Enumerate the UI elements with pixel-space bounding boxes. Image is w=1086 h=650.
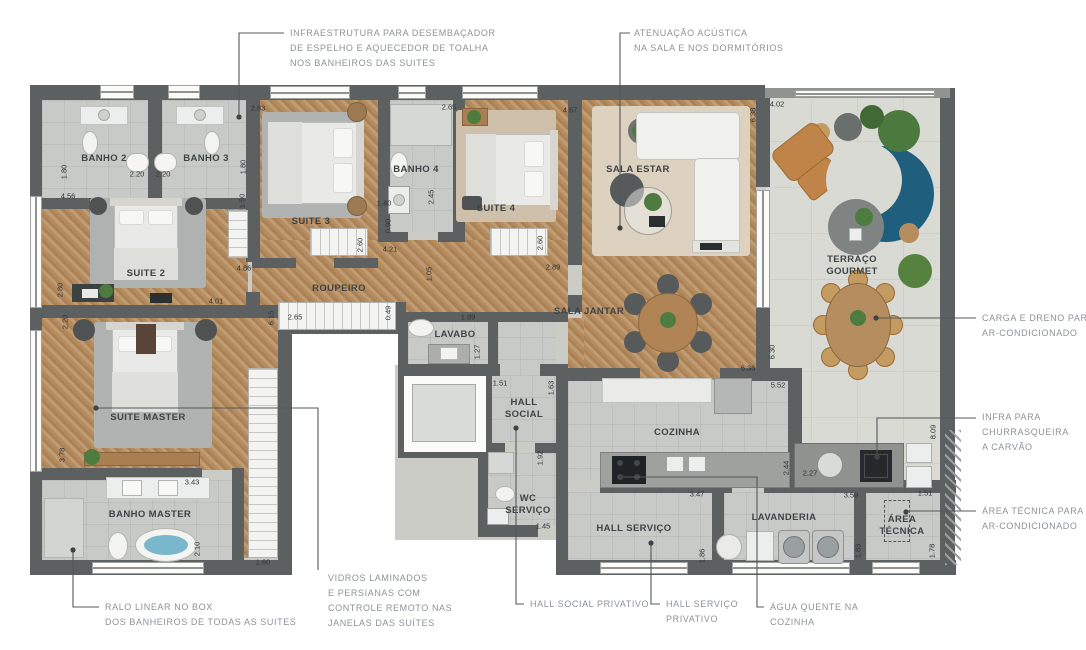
dimension-label: 2.44	[782, 461, 791, 476]
dimension-label: 1.40	[377, 199, 392, 208]
wall	[246, 100, 260, 262]
room-label-suite-master: SUITE MASTER	[110, 412, 186, 424]
dimension-label: 6.36	[741, 364, 756, 373]
terrace-table-plant	[850, 310, 866, 326]
window-horizontal	[398, 86, 426, 99]
kitchen-counter	[602, 378, 712, 403]
suite2-tv	[150, 293, 172, 303]
window-horizontal	[100, 85, 134, 99]
wall	[334, 258, 378, 268]
banho3-toilet	[204, 131, 220, 155]
suite2-closet	[228, 210, 248, 258]
wall	[568, 100, 582, 265]
suite4-headboard	[550, 130, 558, 210]
master-lamp	[195, 319, 217, 341]
dimension-label: 0.49	[384, 306, 393, 321]
terrace-plant	[860, 105, 884, 129]
burner	[617, 474, 623, 480]
wall	[556, 364, 568, 572]
room-label-sala-estar: SALA ESTAR	[606, 164, 670, 176]
suite3-pouf	[347, 102, 367, 122]
room-label-suite-3: SUITE 3	[292, 216, 331, 228]
dimension-label: 4.01	[209, 297, 224, 306]
note-infra-desembacador: INFRAESTRUTURA PARA DESEMBAÇADOR DE ESPE…	[290, 26, 496, 71]
suite4-pillow	[524, 171, 544, 197]
room-label-hall-servico: HALL SERVIÇO	[596, 523, 671, 535]
kitchen-fridge	[714, 378, 752, 414]
dimension-label: 2.27	[803, 469, 818, 478]
dimension-label: 2.20	[156, 170, 171, 179]
window-vertical	[756, 190, 770, 308]
burner	[617, 460, 623, 466]
lavabo-sink	[440, 347, 458, 360]
dimension-label: 2.60	[356, 238, 365, 253]
laundry-sink	[746, 531, 774, 561]
dimension-label: 2.10	[193, 542, 202, 557]
dimension-label: 2.65	[442, 103, 457, 112]
dimension-label: 4.21	[383, 245, 398, 254]
note-infra-churrasqueira: INFRA PARA CHURRASQUEIRA A CARVÃO	[982, 410, 1069, 455]
banho3-basin	[194, 109, 206, 121]
dimension-label: 2.65	[288, 313, 303, 322]
window-vertical	[30, 330, 42, 472]
dimension-label: 2.83	[251, 104, 266, 113]
dimension-label: 2.80	[56, 283, 65, 298]
window-horizontal	[92, 562, 204, 574]
lavabo-basin	[408, 319, 434, 337]
room-label-suite-4: SUITE 4	[477, 203, 516, 215]
dimension-label: 3.43	[185, 478, 200, 487]
wall	[278, 310, 292, 575]
suite3-pouf	[347, 196, 367, 216]
note-hall-social-privativo: HALL SOCIAL PRIVATIVO	[530, 597, 649, 612]
banho4-basin	[393, 194, 405, 206]
dimension-label: 4.86	[237, 264, 252, 273]
floor-wood	[568, 318, 584, 370]
master-plant	[84, 449, 100, 465]
dimension-label: 2.60	[536, 236, 545, 251]
washer-door	[783, 536, 805, 558]
room-label-sala-jantar: SALA JANTAR	[554, 306, 624, 318]
coffee-tray	[649, 216, 665, 227]
dimension-label: 4.02	[770, 100, 785, 109]
suite4-pillow	[524, 141, 544, 167]
suite2-lamp	[89, 197, 107, 215]
wall	[556, 480, 562, 493]
tech-cabinet	[906, 443, 932, 463]
suite2-laptop	[82, 289, 98, 298]
dimension-label: 2.45	[427, 190, 436, 205]
note-carga-dreno: CARGA E DRENO PARA AR-CONDICIONADO	[982, 311, 1086, 341]
bbq-sink	[817, 452, 843, 478]
room-label-cozinha: COZINHA	[654, 427, 700, 439]
elevator-car	[412, 384, 476, 442]
suite2-headboard	[110, 198, 182, 206]
dimension-label: 5.52	[771, 381, 786, 390]
window-horizontal	[795, 90, 935, 97]
suite3-blanket	[268, 122, 302, 204]
banho-master-shower	[44, 498, 84, 558]
room-label-suite-2: SUITE 2	[127, 268, 166, 280]
wall	[756, 95, 770, 187]
terrace-plant	[878, 110, 920, 152]
sofa	[636, 112, 740, 160]
suite2-lamp	[185, 197, 203, 215]
wall	[148, 100, 162, 198]
note-agua-quente: ÁGUA QUENTE NA COZINHA	[770, 600, 858, 630]
laundry-basin	[716, 534, 742, 560]
banho2-basin	[98, 109, 110, 121]
wall	[252, 258, 296, 268]
wall	[478, 525, 538, 537]
room-label-lavabo: LAVABO	[434, 329, 475, 341]
insulation-hatch	[945, 430, 961, 565]
suite2-pillow	[148, 210, 173, 225]
dimension-label: 1.27	[473, 345, 482, 360]
suite2-pillow	[119, 210, 144, 225]
burner	[634, 460, 640, 466]
terrace-stool	[834, 113, 862, 141]
room-label-hall-social: HALL SOCIAL	[505, 397, 543, 421]
window-horizontal	[168, 85, 200, 99]
dimension-label: 1.92	[536, 451, 545, 466]
master-lamp	[73, 319, 95, 341]
tv	[700, 243, 722, 250]
dimension-label: 2.20	[130, 170, 145, 179]
dimension-label: 1.51	[493, 379, 508, 388]
dimension-label: 3.78	[58, 448, 67, 463]
dimension-label: 1.05	[425, 267, 434, 282]
kitchen-sink	[688, 456, 706, 472]
dining-chair	[657, 350, 679, 372]
wall	[246, 292, 260, 310]
suite-master-closet	[248, 368, 278, 558]
window-horizontal	[872, 562, 920, 574]
note-vidros-laminados: VIDROS LAMINADOS E PERSIANAS COM CONTROL…	[328, 571, 452, 631]
master-sideboard	[84, 452, 200, 466]
dimension-label: 0.90	[384, 219, 393, 234]
dimension-label: 1.86	[698, 549, 707, 564]
master-throw	[136, 324, 156, 354]
suite3-pillow	[333, 163, 353, 193]
room-label-area-tecnica: ÁREA TÉCNICA	[879, 514, 924, 538]
dimension-label: 2.20	[61, 315, 70, 330]
dimension-label: 3.47	[690, 490, 705, 499]
suite2-plant	[99, 284, 113, 298]
bathtub-water	[144, 535, 188, 555]
dimension-label: 8.09	[929, 425, 938, 440]
dimension-label: 1.89	[461, 313, 476, 322]
suite3-headboard	[356, 118, 364, 208]
note-ralo-linear: RALO LINEAR NO BOX DOS BANHEIROS DE TODA…	[105, 600, 296, 630]
dimension-label: 3.59	[844, 491, 859, 500]
dimension-label: 1.80	[60, 165, 69, 180]
kitchen-sink	[666, 456, 684, 472]
wall	[556, 525, 568, 537]
room-label-banho-master: BANHO MASTER	[109, 509, 191, 521]
terrace-round-rug	[828, 199, 884, 255]
room-label-terraco-gourmet: TERRAÇO GOURMET	[826, 254, 877, 278]
terrace-wood-stool	[899, 223, 919, 243]
room-label-banho-2: BANHO 2	[81, 153, 127, 165]
dimension-label: 1.51	[918, 489, 933, 498]
room-label-wc-servico: WC SERVIÇO	[505, 493, 550, 517]
window-vertical	[30, 196, 42, 308]
banho2-toilet	[82, 131, 98, 155]
dimension-label: 1.45	[536, 522, 551, 531]
dining-table-plant	[660, 312, 676, 328]
dimension-label: 1.78	[928, 544, 937, 559]
room-label-banho-3: BANHO 3	[183, 153, 229, 165]
wall	[232, 468, 244, 568]
dimension-label: 1.50	[238, 194, 247, 209]
dimension-label: 1.80	[239, 160, 248, 175]
window-horizontal	[462, 86, 538, 99]
sofa-chaise	[694, 158, 740, 252]
burner	[634, 474, 640, 480]
room-label-lavanderia: LAVANDERIA	[752, 512, 817, 524]
dimension-label: 1.63	[547, 381, 556, 396]
banho-master-basin	[158, 480, 178, 496]
room-label-banho-4: BANHO 4	[393, 164, 439, 176]
window-horizontal	[270, 86, 350, 99]
floorplan-canvas: BANHO 2BANHO 3SUITE 2SUITE 3BANHO 4SUITE…	[0, 0, 1086, 650]
note-hall-servico-privativo: HALL SERVIÇO PRIVATIVO	[666, 597, 738, 627]
dimension-label: 6.30	[768, 345, 777, 360]
dimension-label: 1.60	[256, 558, 271, 567]
apartment-floorplan: BANHO 2BANHO 3SUITE 2SUITE 3BANHO 4SUITE…	[0, 0, 1086, 650]
banho-master-toilet	[108, 532, 128, 560]
dimension-label: 4.67	[563, 106, 578, 115]
suite3-pillow	[333, 128, 353, 158]
room-label-roupeiro: ROUPEIRO	[312, 283, 366, 295]
bbq-grill-grid	[864, 454, 888, 478]
dimension-label: 6.38	[749, 108, 758, 123]
suite4-plant	[467, 110, 481, 124]
washer-door	[817, 536, 839, 558]
tech-cabinet	[906, 466, 932, 488]
dimension-label: 6.15	[267, 311, 276, 326]
note-area-tecnica-ar: ÁREA TÉCNICA PARA AR-CONDICIONADO	[982, 504, 1084, 534]
banho-master-basin	[122, 480, 142, 496]
coffee-table-plant	[644, 193, 662, 211]
terrace-plant	[898, 254, 932, 288]
dimension-label: 2.89	[546, 263, 561, 272]
note-atenuacao-acustica: ATENUAÇÃO ACÚSTICA NA SALA E NOS DORMITÓ…	[634, 26, 784, 56]
wall	[438, 232, 465, 242]
wc-shower	[488, 452, 514, 474]
terrace-art-box	[849, 228, 862, 241]
window-horizontal	[600, 562, 688, 574]
master-blanket	[112, 372, 178, 412]
dimension-label: 1.83	[854, 544, 863, 559]
dimension-label: 4.56	[61, 192, 76, 201]
terrace-rug-plant	[855, 208, 873, 226]
wall	[378, 232, 408, 242]
